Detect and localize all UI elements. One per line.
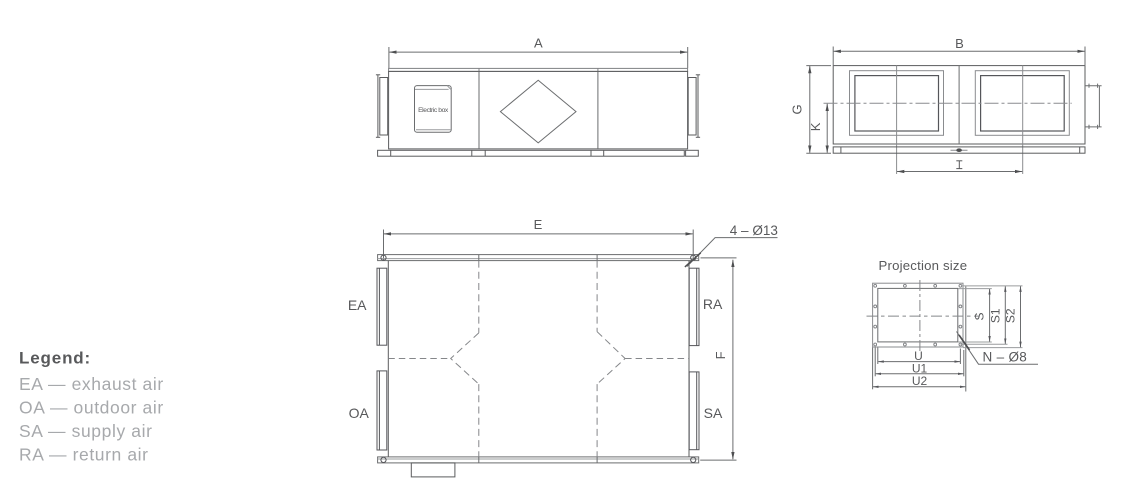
svg-text:Projection size: Projection size [879,258,968,273]
svg-text:Electric box: Electric box [418,107,449,114]
svg-text:N – Ø8: N – Ø8 [983,350,1028,365]
svg-text:Legend:: Legend: [19,349,91,368]
svg-text:SA: SA [704,405,723,421]
svg-text:S1: S1 [988,308,1002,323]
svg-text:4 – Ø13: 4 – Ø13 [730,223,778,238]
svg-text:EA — exhaust air: EA — exhaust air [19,374,164,394]
svg-text:EA: EA [348,297,367,313]
svg-text:B: B [955,36,964,51]
svg-text:S: S [973,312,987,320]
svg-text:OA: OA [349,405,370,421]
svg-text:E: E [534,217,543,232]
svg-text:F: F [713,351,728,359]
svg-text:RA: RA [703,296,723,312]
svg-text:U2: U2 [912,374,928,388]
svg-text:OA — outdoor air: OA — outdoor air [19,398,164,418]
svg-text:RA — return air: RA — return air [19,445,149,465]
svg-text:K: K [808,122,823,131]
svg-text:SA — supply air: SA — supply air [19,421,153,441]
svg-text:S2: S2 [1004,308,1018,323]
svg-text:G: G [790,104,805,114]
svg-text:A: A [534,35,543,50]
